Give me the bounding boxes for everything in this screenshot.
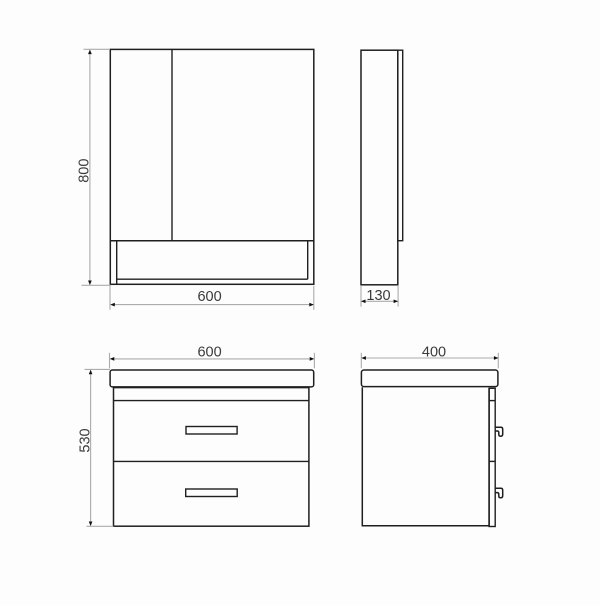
svg-text:600: 600 [197,345,221,361]
svg-text:600: 600 [197,289,221,305]
svg-text:400: 400 [422,345,446,361]
svg-text:130: 130 [366,288,390,304]
svg-text:800: 800 [77,159,93,183]
svg-text:530: 530 [77,428,93,452]
